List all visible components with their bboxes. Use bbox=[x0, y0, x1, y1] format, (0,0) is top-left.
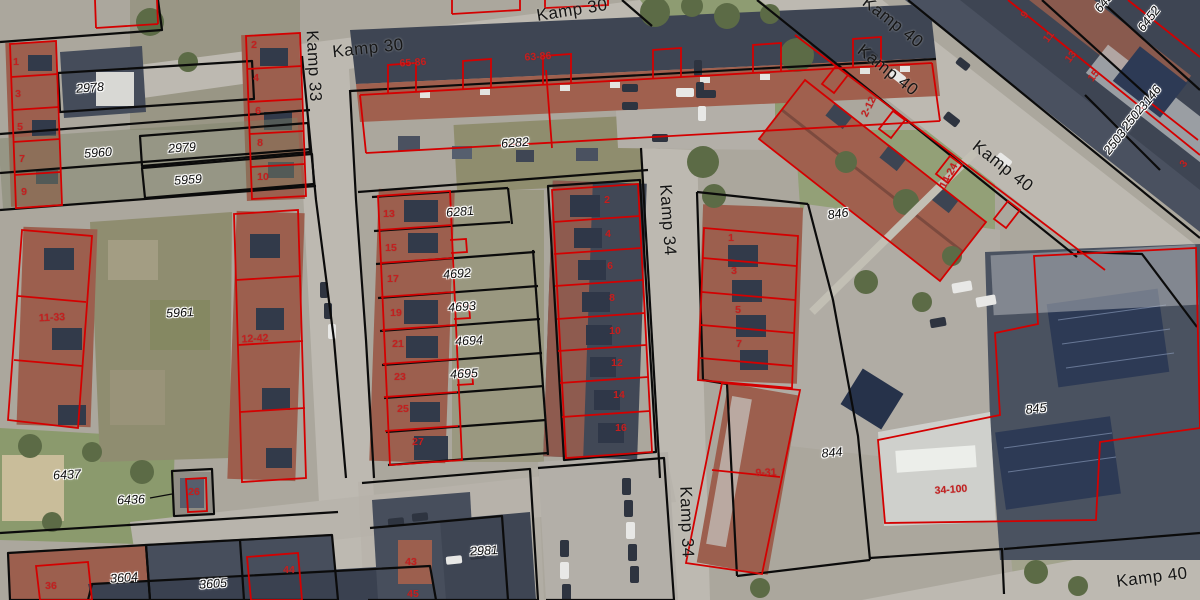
house-number: 3 bbox=[731, 266, 737, 277]
street-label: Kamp 33 bbox=[304, 30, 325, 102]
house-number: 25 bbox=[397, 404, 409, 415]
house-number: 9 bbox=[1019, 9, 1031, 20]
parcel-number: 6282 bbox=[501, 136, 530, 150]
house-number: 4 bbox=[253, 73, 259, 84]
street-label: Kamp 34 bbox=[657, 184, 679, 257]
house-number: 4 bbox=[605, 229, 611, 240]
house-number: 8 bbox=[609, 293, 615, 304]
house-number: 12-42 bbox=[241, 333, 268, 345]
parcel-number: 4694 bbox=[455, 334, 483, 348]
house-number: 10 bbox=[609, 326, 621, 337]
house-number: 3 bbox=[15, 89, 21, 100]
parcel-number: 2979 bbox=[168, 141, 197, 155]
house-number: 3 bbox=[1178, 158, 1190, 169]
house-number: 2 bbox=[604, 195, 610, 206]
parcel-number: 845 bbox=[1025, 402, 1047, 417]
street-label: Kamp 40 bbox=[970, 137, 1037, 194]
house-number: 14-24 bbox=[938, 162, 960, 191]
parcel-number: 844 bbox=[821, 446, 843, 460]
house-number: 6 bbox=[255, 106, 261, 117]
house-number: 9-31 bbox=[755, 467, 776, 478]
parcel-number: 3604 bbox=[110, 571, 139, 585]
house-number: 9 bbox=[21, 187, 27, 198]
house-number: 8 bbox=[257, 138, 263, 149]
house-number: 63-86 bbox=[524, 51, 552, 63]
house-number: 2 bbox=[251, 40, 257, 51]
house-number: 13 bbox=[1063, 49, 1078, 65]
street-label: Kamp 34 bbox=[677, 486, 696, 558]
parcel-number: 3146 bbox=[1137, 83, 1164, 113]
house-number: 34-100 bbox=[934, 484, 967, 497]
house-number: 45 bbox=[407, 589, 419, 600]
parcel-number: 5959 bbox=[174, 173, 203, 187]
house-number: 11 bbox=[1041, 29, 1056, 44]
parcel-number: 6452 bbox=[1093, 0, 1120, 15]
house-number: 65-86 bbox=[399, 57, 427, 69]
map-canvas[interactable]: Kamp 30Kamp 30Kamp 33Kamp 34Kamp 34Kamp … bbox=[0, 0, 1200, 600]
street-label: Kamp 40 bbox=[1115, 564, 1188, 590]
house-number: 36 bbox=[45, 581, 57, 592]
house-number: 11-33 bbox=[39, 312, 66, 324]
house-number: 44 bbox=[283, 565, 295, 576]
house-number: 1 bbox=[728, 233, 734, 244]
parcel-number: 6436 bbox=[117, 493, 145, 506]
house-number: 16 bbox=[615, 423, 627, 434]
house-number: 43 bbox=[405, 557, 417, 568]
parcel-number: 6452 bbox=[1136, 4, 1163, 34]
parcel-number: 3605 bbox=[199, 577, 228, 591]
house-number: 17 bbox=[387, 274, 399, 285]
parcel-number: 2503 bbox=[1102, 127, 1129, 157]
house-number: 23 bbox=[394, 372, 406, 383]
street-label: Kamp 30 bbox=[535, 0, 608, 24]
house-number: 5 bbox=[17, 122, 23, 133]
house-number: 14 bbox=[613, 390, 625, 401]
parcel-number: 6281 bbox=[446, 205, 475, 219]
parcel-number: 2981 bbox=[470, 544, 498, 558]
street-label: Kamp 30 bbox=[332, 36, 405, 60]
house-number: 7 bbox=[736, 339, 742, 350]
parcel-number: 5961 bbox=[166, 306, 194, 320]
house-number: 2-12 bbox=[860, 95, 879, 118]
parcel-number: 6437 bbox=[53, 468, 81, 482]
parcel-number: 2978 bbox=[76, 81, 105, 95]
house-number: 5 bbox=[735, 305, 741, 316]
parcel-number: 2502 bbox=[1120, 103, 1147, 133]
house-number: 6 bbox=[607, 261, 613, 272]
house-number: 7 bbox=[19, 154, 25, 165]
house-number: 15 bbox=[385, 243, 397, 254]
house-number: 13 bbox=[383, 209, 395, 220]
parcel-number: 5960 bbox=[84, 146, 113, 160]
house-number: 12 bbox=[611, 358, 623, 369]
house-number: 1 bbox=[13, 57, 19, 68]
street-label: Kamp 40 bbox=[855, 41, 922, 98]
house-number: 10 bbox=[257, 172, 269, 183]
map-labels-layer: Kamp 30Kamp 30Kamp 33Kamp 34Kamp 34Kamp … bbox=[0, 0, 1200, 600]
parcel-number: 4692 bbox=[443, 267, 472, 281]
street-label: Kamp 40 bbox=[860, 0, 927, 51]
house-number: 15 bbox=[1086, 68, 1101, 84]
parcel-number: 4695 bbox=[450, 367, 478, 381]
parcel-number: 4693 bbox=[448, 300, 477, 314]
parcel-number: 846 bbox=[827, 206, 849, 221]
house-number: 19 bbox=[390, 308, 402, 319]
house-number: 21 bbox=[392, 339, 404, 350]
house-number: 27 bbox=[412, 437, 424, 448]
house-number: 26 bbox=[188, 487, 200, 498]
